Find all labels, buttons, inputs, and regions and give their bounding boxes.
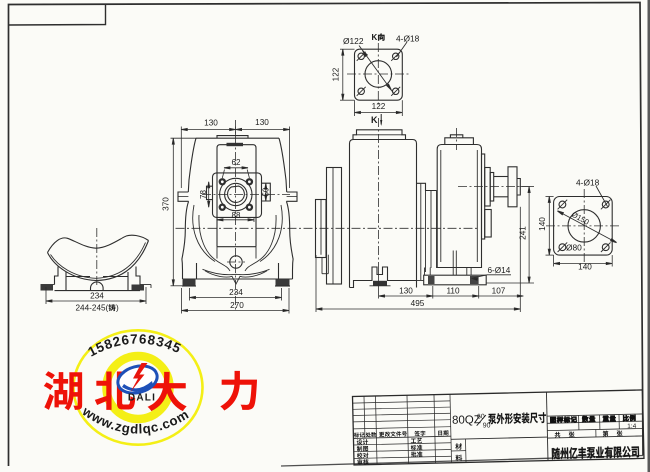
- svg-text:78: 78: [199, 190, 208, 199]
- svg-text:Ø122: Ø122: [343, 36, 364, 46]
- svg-text:DALI: DALI: [128, 393, 156, 404]
- svg-text:62: 62: [232, 158, 241, 167]
- svg-text:241: 241: [518, 226, 527, 240]
- svg-text:495: 495: [411, 299, 425, 308]
- svg-text:88: 88: [232, 211, 241, 220]
- svg-text:370: 370: [162, 197, 171, 211]
- svg-text:140: 140: [578, 263, 592, 272]
- svg-text:244-245(: 244-245(: [76, 304, 109, 313]
- svg-text:6-Ø14: 6-Ø14: [488, 266, 511, 275]
- svg-text:130: 130: [399, 287, 413, 296]
- svg-text:234: 234: [90, 292, 104, 301]
- svg-text:270: 270: [230, 301, 244, 310]
- svg-text:107: 107: [492, 287, 506, 296]
- svg-text:110: 110: [446, 287, 459, 296]
- svg-text:130: 130: [255, 118, 269, 127]
- svg-text:Ø150: Ø150: [570, 210, 591, 227]
- svg-text:4-Ø18: 4-Ø18: [576, 178, 600, 188]
- svg-text:1:4: 1:4: [627, 423, 637, 430]
- svg-text:130: 130: [204, 119, 218, 128]
- svg-text:234: 234: [229, 288, 243, 297]
- svg-text:): ): [116, 304, 119, 313]
- svg-text:4-Ø18: 4-Ø18: [396, 34, 420, 44]
- svg-text:122: 122: [372, 102, 386, 111]
- svg-text:140: 140: [538, 217, 547, 231]
- svg-text:K: K: [372, 33, 378, 42]
- svg-text:50: 50: [261, 187, 270, 196]
- svg-text:K: K: [371, 115, 378, 125]
- svg-text:122: 122: [332, 67, 341, 81]
- svg-text:Ø80: Ø80: [566, 243, 582, 253]
